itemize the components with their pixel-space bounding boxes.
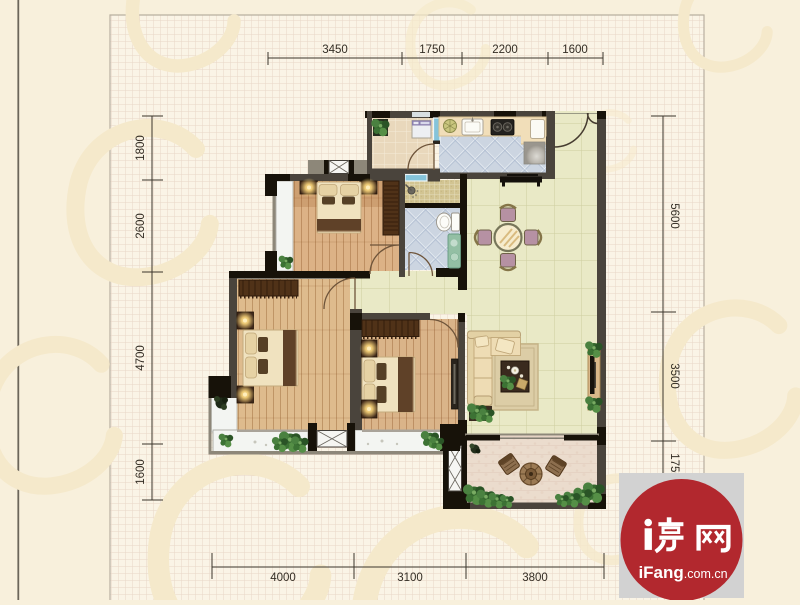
svg-text:3500: 3500 [668,363,680,389]
svg-text:1800: 1800 [135,135,147,161]
svg-text:1750: 1750 [419,44,445,56]
svg-text:3100: 3100 [397,572,423,584]
svg-text:3450: 3450 [322,44,348,56]
svg-text:1600: 1600 [562,44,588,56]
svg-text:5600: 5600 [668,203,680,229]
svg-text:4700: 4700 [135,345,147,371]
svg-text:2200: 2200 [492,44,518,56]
svg-text:3800: 3800 [522,572,548,584]
svg-text:2600: 2600 [135,213,147,239]
svg-text:1600: 1600 [135,459,147,485]
svg-text:4000: 4000 [270,572,296,584]
